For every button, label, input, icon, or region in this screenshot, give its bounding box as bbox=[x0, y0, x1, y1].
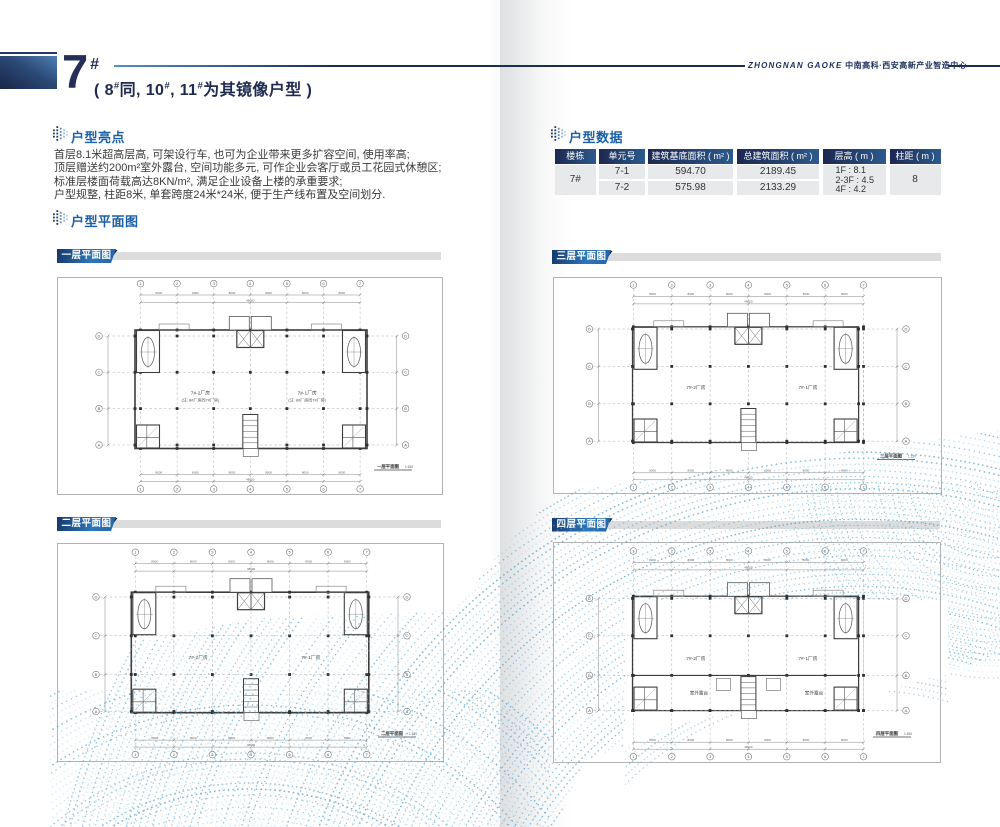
svg-text:8000: 8000 bbox=[228, 559, 235, 563]
svg-text:8000: 8000 bbox=[726, 292, 733, 296]
svg-text:B: B bbox=[406, 672, 409, 677]
svg-text:8000: 8000 bbox=[192, 291, 199, 295]
svg-text:B: B bbox=[588, 401, 591, 406]
svg-text:8000: 8000 bbox=[841, 558, 848, 562]
svg-text:A: A bbox=[406, 709, 409, 714]
svg-text:室外露台: 室外露台 bbox=[805, 690, 824, 697]
svg-text:8000: 8000 bbox=[764, 469, 771, 473]
svg-text:8000: 8000 bbox=[229, 470, 236, 474]
svg-text:C: C bbox=[404, 370, 407, 375]
svg-text:8000: 8000 bbox=[688, 558, 695, 562]
svg-text:D: D bbox=[905, 596, 908, 601]
svg-text:8000: 8000 bbox=[155, 470, 162, 474]
svg-text:A: A bbox=[98, 442, 101, 447]
svg-text:8000: 8000 bbox=[267, 736, 274, 740]
svg-text:8000: 8000 bbox=[229, 291, 236, 295]
svg-text:B: B bbox=[905, 401, 908, 406]
svg-text:8000: 8000 bbox=[688, 292, 695, 296]
svg-text:(注: 8#厂房同7#厂房): (注: 8#厂房同7#厂房) bbox=[288, 396, 326, 402]
svg-text:B: B bbox=[905, 673, 908, 678]
svg-text:A: A bbox=[95, 709, 98, 714]
svg-text:8000: 8000 bbox=[151, 559, 158, 563]
svg-text:8000: 8000 bbox=[649, 738, 656, 742]
svg-text:48000: 48000 bbox=[744, 745, 753, 749]
svg-text:C: C bbox=[95, 633, 98, 638]
svg-text:室外露台: 室外露台 bbox=[690, 690, 709, 697]
svg-text:8000: 8000 bbox=[305, 559, 312, 563]
svg-text:8000: 8000 bbox=[803, 292, 810, 296]
svg-text:四层平面图: 四层平面图 bbox=[876, 730, 899, 737]
svg-text:7#-1厂房: 7#-1厂房 bbox=[798, 384, 817, 391]
svg-text:1:150: 1:150 bbox=[908, 455, 916, 459]
svg-text:48000: 48000 bbox=[246, 298, 255, 302]
svg-text:三层平面图: 三层平面图 bbox=[880, 453, 903, 460]
svg-text:8000: 8000 bbox=[338, 470, 345, 474]
svg-text:8000: 8000 bbox=[688, 738, 695, 742]
svg-text:B: B bbox=[95, 672, 98, 677]
svg-text:8000: 8000 bbox=[764, 292, 771, 296]
svg-text:8000: 8000 bbox=[344, 736, 351, 740]
svg-text:48000: 48000 bbox=[247, 743, 256, 747]
svg-text:1:150: 1:150 bbox=[904, 732, 912, 736]
svg-text:8000: 8000 bbox=[267, 559, 274, 563]
svg-text:48000: 48000 bbox=[247, 567, 256, 571]
svg-text:8000: 8000 bbox=[302, 291, 309, 295]
svg-text:8000: 8000 bbox=[344, 559, 351, 563]
svg-text:A: A bbox=[905, 439, 908, 444]
svg-text:8000: 8000 bbox=[228, 736, 235, 740]
svg-text:1:150: 1:150 bbox=[409, 732, 417, 736]
svg-text:8000: 8000 bbox=[764, 558, 771, 562]
svg-text:C: C bbox=[98, 370, 101, 375]
svg-text:D: D bbox=[588, 596, 591, 601]
svg-text:8000: 8000 bbox=[841, 738, 848, 742]
svg-text:D: D bbox=[404, 333, 407, 338]
svg-text:A: A bbox=[588, 708, 591, 713]
svg-text:48000: 48000 bbox=[744, 300, 753, 304]
svg-text:8000: 8000 bbox=[726, 469, 733, 473]
svg-text:7#-1厂房: 7#-1厂房 bbox=[298, 389, 317, 396]
svg-text:二层平面图: 二层平面图 bbox=[381, 730, 404, 737]
svg-text:8000: 8000 bbox=[151, 736, 158, 740]
svg-text:8000: 8000 bbox=[190, 736, 197, 740]
svg-text:48000: 48000 bbox=[246, 477, 255, 481]
svg-text:C: C bbox=[406, 633, 409, 638]
svg-text:7#-2厂房: 7#-2厂房 bbox=[686, 655, 705, 662]
svg-text:8000: 8000 bbox=[803, 738, 810, 742]
svg-text:8000: 8000 bbox=[841, 292, 848, 296]
svg-text:8000: 8000 bbox=[688, 469, 695, 473]
svg-text:7#-2厂房: 7#-2厂房 bbox=[686, 384, 705, 391]
svg-text:D: D bbox=[406, 594, 409, 599]
svg-text:8000: 8000 bbox=[649, 469, 656, 473]
svg-text:8000: 8000 bbox=[265, 291, 272, 295]
svg-text:D: D bbox=[905, 326, 908, 331]
svg-text:8000: 8000 bbox=[338, 291, 345, 295]
svg-text:8000: 8000 bbox=[155, 291, 162, 295]
svg-text:8000: 8000 bbox=[803, 558, 810, 562]
svg-text:C: C bbox=[588, 633, 591, 638]
svg-text:8000: 8000 bbox=[803, 469, 810, 473]
svg-text:D: D bbox=[95, 594, 98, 599]
svg-text:8000: 8000 bbox=[192, 470, 199, 474]
svg-text:D: D bbox=[98, 333, 101, 338]
svg-text:1:150: 1:150 bbox=[405, 465, 413, 469]
svg-text:8000: 8000 bbox=[302, 470, 309, 474]
svg-text:C: C bbox=[588, 364, 591, 369]
svg-text:B: B bbox=[404, 406, 407, 411]
svg-text:B: B bbox=[588, 673, 591, 678]
svg-text:A: A bbox=[404, 442, 407, 447]
svg-text:8000: 8000 bbox=[305, 736, 312, 740]
svg-text:一层平面图: 一层平面图 bbox=[377, 463, 400, 470]
svg-text:7#-1厂房: 7#-1厂房 bbox=[798, 655, 817, 662]
svg-text:8000: 8000 bbox=[726, 558, 733, 562]
svg-text:48000: 48000 bbox=[744, 476, 753, 480]
svg-text:C: C bbox=[905, 633, 908, 638]
svg-text:8000: 8000 bbox=[265, 470, 272, 474]
svg-text:B: B bbox=[98, 406, 101, 411]
svg-text:A: A bbox=[588, 439, 591, 444]
svg-text:8000: 8000 bbox=[649, 558, 656, 562]
svg-text:8000: 8000 bbox=[726, 738, 733, 742]
svg-text:8000: 8000 bbox=[649, 292, 656, 296]
svg-text:7#-2厂房: 7#-2厂房 bbox=[191, 389, 210, 396]
svg-text:8000: 8000 bbox=[190, 559, 197, 563]
svg-text:7#-1厂房: 7#-1厂房 bbox=[301, 654, 320, 661]
svg-text:(注: 8#厂房同7#厂房): (注: 8#厂房同7#厂房) bbox=[182, 396, 220, 402]
svg-text:C: C bbox=[905, 364, 908, 369]
svg-text:7#-2厂房: 7#-2厂房 bbox=[189, 654, 208, 661]
svg-text:A: A bbox=[905, 708, 908, 713]
svg-text:8000: 8000 bbox=[764, 738, 771, 742]
svg-text:48000: 48000 bbox=[744, 566, 753, 570]
svg-text:D: D bbox=[588, 326, 591, 331]
svg-text:8000: 8000 bbox=[841, 469, 848, 473]
